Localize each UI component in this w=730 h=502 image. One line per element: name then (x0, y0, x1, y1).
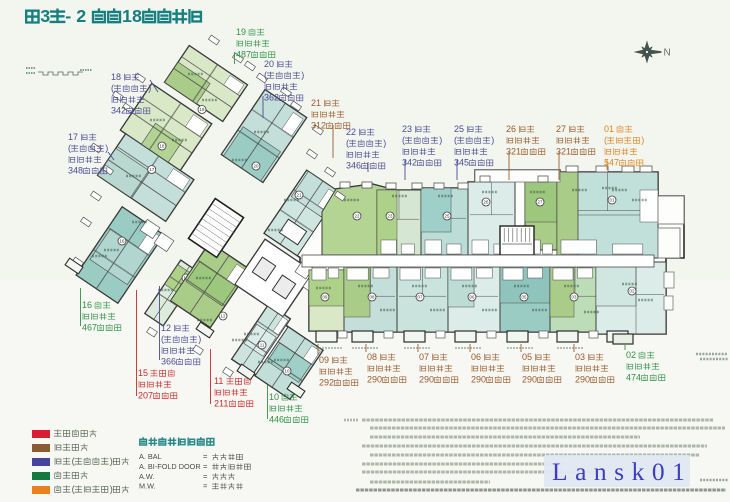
svg-text:03: 03 (575, 352, 585, 362)
svg-text:(: ( (402, 135, 405, 145)
svg-text:321: 321 (556, 146, 571, 156)
svg-text:01: 01 (610, 198, 615, 203)
svg-text:): ) (198, 334, 201, 344)
svg-text:05: 05 (522, 352, 532, 362)
svg-text:): ) (383, 138, 386, 148)
svg-text:12: 12 (161, 323, 171, 333)
svg-text:05: 05 (522, 295, 527, 300)
svg-text:11: 11 (214, 376, 223, 386)
svg-text:): ) (641, 135, 644, 145)
svg-text:): ) (105, 143, 108, 153)
svg-text:547: 547 (604, 158, 619, 168)
svg-text:17: 17 (68, 132, 78, 142)
svg-text:345: 345 (454, 158, 469, 168)
svg-text:22: 22 (346, 127, 356, 137)
svg-text:06: 06 (471, 352, 481, 362)
svg-text:09: 09 (319, 355, 329, 365)
svg-text:474: 474 (626, 372, 641, 382)
svg-text:211: 211 (214, 398, 228, 408)
svg-text:(: ( (72, 484, 75, 494)
svg-text:(: ( (604, 135, 607, 145)
svg-text:19: 19 (200, 107, 205, 112)
svg-text:(: ( (68, 143, 71, 153)
svg-text:22: 22 (355, 214, 360, 219)
svg-text:): ) (439, 135, 442, 145)
svg-text:19: 19 (236, 27, 246, 37)
svg-text:(: ( (111, 83, 114, 93)
svg-text:- 2: - 2 (65, 6, 86, 26)
svg-text:07: 07 (418, 295, 423, 300)
svg-text:=: = (203, 452, 208, 461)
svg-text:12: 12 (221, 314, 226, 319)
svg-text:23: 23 (402, 124, 412, 134)
svg-text:08: 08 (370, 295, 375, 300)
svg-text:21: 21 (297, 193, 302, 198)
svg-text:292: 292 (319, 377, 334, 387)
svg-text:290: 290 (367, 374, 382, 384)
svg-text:10: 10 (269, 392, 279, 402)
svg-text:20: 20 (264, 59, 274, 69)
svg-text:17: 17 (149, 167, 154, 172)
svg-text:(: ( (454, 135, 457, 145)
svg-text:): ) (301, 70, 304, 80)
svg-text:290: 290 (522, 374, 537, 384)
svg-text:11: 11 (260, 343, 265, 348)
svg-text:321: 321 (506, 146, 521, 156)
svg-text:16: 16 (120, 239, 125, 244)
svg-text:16: 16 (82, 300, 92, 310)
svg-text:290: 290 (471, 374, 486, 384)
svg-text:(: ( (264, 70, 267, 80)
svg-text:): ) (110, 456, 113, 466)
svg-text:26: 26 (506, 124, 516, 134)
svg-text:(: ( (346, 138, 349, 148)
svg-text:3: 3 (40, 6, 50, 26)
svg-text:26: 26 (484, 200, 489, 205)
svg-text:06: 06 (470, 295, 475, 300)
svg-text:10: 10 (285, 369, 290, 374)
svg-text:23: 23 (388, 214, 393, 219)
svg-text:20: 20 (254, 164, 259, 169)
svg-text:): ) (110, 484, 113, 494)
svg-text:18: 18 (111, 72, 121, 82)
svg-text:03: 03 (572, 295, 577, 300)
svg-text:342: 342 (402, 158, 417, 168)
svg-text:18: 18 (122, 6, 142, 26)
svg-text:A. BI-FOLD DOOR: A. BI-FOLD DOOR (139, 462, 201, 471)
svg-text:366: 366 (161, 357, 176, 367)
svg-text:18: 18 (160, 144, 165, 149)
svg-text:342: 342 (111, 106, 126, 116)
svg-text:25: 25 (454, 124, 464, 134)
svg-text:=: = (203, 462, 208, 471)
svg-text:290: 290 (419, 374, 434, 384)
svg-text:446: 446 (269, 414, 284, 424)
svg-text:=: = (203, 482, 208, 491)
svg-text:01: 01 (604, 124, 614, 134)
svg-text:02: 02 (630, 289, 635, 294)
svg-text:(: ( (161, 334, 164, 344)
svg-text:=: = (203, 472, 208, 481)
svg-text:09: 09 (323, 295, 328, 300)
svg-text:N: N (664, 48, 671, 59)
svg-text:15: 15 (138, 368, 148, 378)
svg-text:Lansk01: Lansk01 (552, 457, 692, 486)
svg-text:): ) (148, 83, 151, 93)
svg-text:346: 346 (346, 161, 361, 171)
svg-text:27: 27 (556, 124, 566, 134)
svg-text:): ) (491, 135, 494, 145)
svg-text:21: 21 (311, 98, 321, 108)
svg-text:348: 348 (68, 166, 83, 176)
svg-text:487: 487 (236, 49, 251, 59)
svg-text:207: 207 (138, 390, 153, 400)
svg-text:27: 27 (538, 200, 543, 205)
svg-text:02: 02 (626, 350, 636, 360)
svg-text:362: 362 (264, 93, 279, 103)
svg-text:(: ( (72, 456, 75, 466)
svg-text:A.W.: A.W. (139, 472, 154, 481)
svg-text:312: 312 (311, 120, 326, 130)
svg-text:290: 290 (575, 374, 590, 384)
svg-text:467: 467 (82, 322, 97, 332)
svg-text:07: 07 (419, 352, 429, 362)
svg-text:M.W.: M.W. (139, 482, 156, 491)
svg-text:08: 08 (367, 352, 377, 362)
svg-text:25: 25 (445, 214, 450, 219)
svg-text:A. BAL: A. BAL (139, 452, 162, 461)
